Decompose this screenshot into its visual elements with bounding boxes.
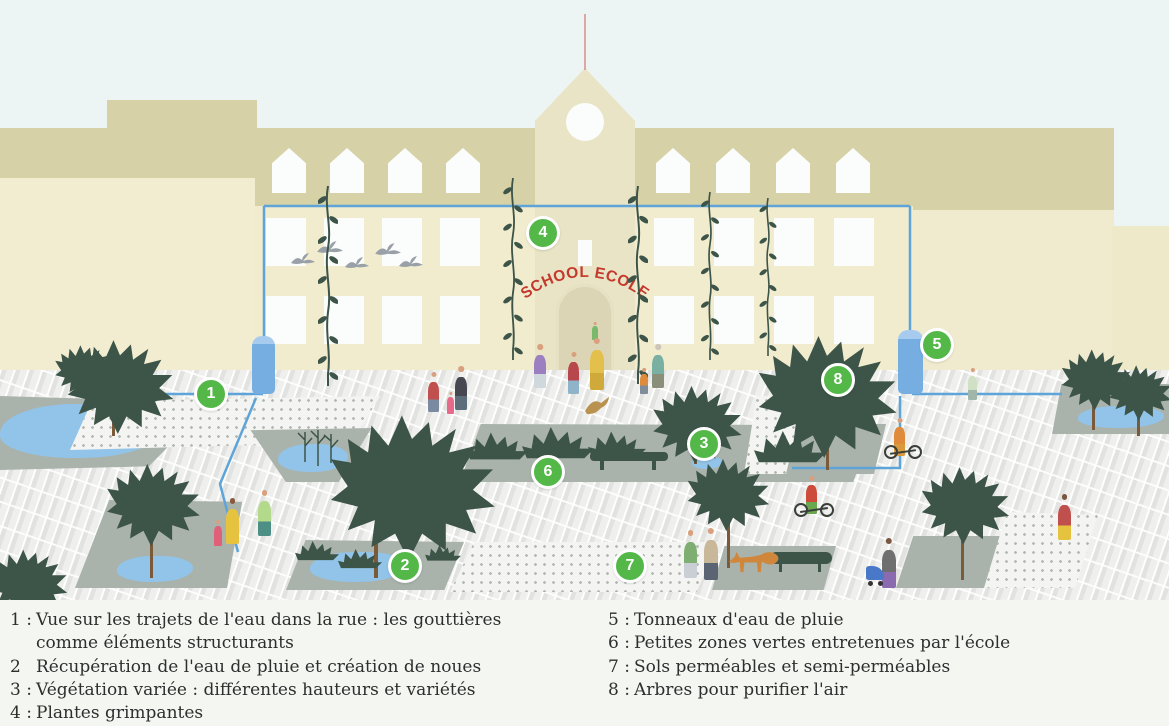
legend-text: Tonneaux d'eau de pluie xyxy=(634,609,1010,632)
marker-number: 2 xyxy=(401,557,410,574)
legend-item-3: 3 :Végétation variée : différentes haute… xyxy=(10,679,598,702)
legend-item-8: 8 :Arbres pour purifier l'air xyxy=(608,679,1010,702)
arched-window xyxy=(330,148,364,193)
tower-round-window xyxy=(566,103,604,141)
illustration-scene: SCHOOL ECOLE xyxy=(0,0,1169,600)
tree-pit-water xyxy=(117,556,193,582)
marker-8: 8 xyxy=(821,363,855,397)
legend-column-left: 1 :Vue sur les trajets de l'eau dans la … xyxy=(0,609,598,725)
marker-number: 6 xyxy=(544,463,553,480)
rain-barrel-right xyxy=(898,330,923,394)
left-building-band xyxy=(0,128,292,180)
legend-number: 6 : xyxy=(608,632,634,655)
tree8-pit xyxy=(786,424,886,474)
marker-3: 3 xyxy=(687,427,721,461)
legend-number: 2 xyxy=(10,656,36,679)
legend-text: Récupération de l'eau de pluie et créati… xyxy=(36,656,532,679)
pedestrian xyxy=(968,368,977,400)
window xyxy=(774,218,814,266)
pedestrian xyxy=(590,338,604,390)
windows-left-row1 xyxy=(266,218,480,266)
pedestrian xyxy=(568,352,579,394)
legend-item-4: 4 :Plantes grimpantes xyxy=(10,702,598,725)
marker-number: 7 xyxy=(626,557,635,574)
marker-number: 5 xyxy=(933,336,942,353)
arched-window xyxy=(272,148,306,193)
pedestrian xyxy=(704,528,718,580)
far-right-building xyxy=(1112,226,1169,372)
marker-number: 3 xyxy=(700,435,709,452)
pedestrian xyxy=(534,344,546,388)
permeable-strip-zone-7 xyxy=(450,542,718,592)
legend-text: Végétation variée : différentes hauteurs… xyxy=(36,679,532,702)
window xyxy=(324,296,364,344)
legend-item-1: 1 :Vue sur les trajets de l'eau dans la … xyxy=(10,609,598,656)
window xyxy=(382,296,422,344)
window xyxy=(714,296,754,344)
arched-window xyxy=(388,148,422,193)
window xyxy=(440,218,480,266)
legend-text: Vue sur les trajets de l'eau dans la rue… xyxy=(36,609,532,656)
legend: 1 :Vue sur les trajets de l'eau dans la … xyxy=(0,600,1169,725)
windows-right-row1 xyxy=(654,218,874,266)
window xyxy=(774,296,814,344)
windows-left-row2 xyxy=(266,296,480,344)
legend-text: Arbres pour purifier l'air xyxy=(634,679,1010,702)
window xyxy=(382,218,422,266)
windows-right-row2 xyxy=(654,296,874,344)
child xyxy=(640,368,648,394)
window xyxy=(834,296,874,344)
pedestrian xyxy=(455,366,467,410)
arched-windows-right xyxy=(656,148,870,193)
window xyxy=(834,218,874,266)
window xyxy=(266,218,306,266)
pedestrian-with-stroller xyxy=(882,538,896,588)
window xyxy=(654,218,694,266)
marker-number: 1 xyxy=(207,385,216,402)
legend-item-2: 2Récupération de l'eau de pluie et créat… xyxy=(10,656,598,679)
marker-5: 5 xyxy=(920,328,954,362)
arched-window xyxy=(656,148,690,193)
marker-2: 2 xyxy=(388,549,422,583)
window xyxy=(266,296,306,344)
marker-7: 7 xyxy=(613,549,647,583)
arched-window xyxy=(836,148,870,193)
marker-1: 1 xyxy=(194,377,228,411)
school-sign-text: SCHOOL ECOLE xyxy=(518,264,652,303)
window xyxy=(714,218,754,266)
pedestrian xyxy=(1058,494,1071,540)
bicycle xyxy=(884,444,922,459)
legend-number: 3 : xyxy=(10,679,36,702)
arched-window xyxy=(446,148,480,193)
legend-number: 5 : xyxy=(608,609,634,632)
pedestrian xyxy=(428,372,439,412)
legend-text: Petites zones vertes entretenues par l'é… xyxy=(634,632,1010,655)
child xyxy=(447,392,454,414)
school-sign: SCHOOL ECOLE xyxy=(515,252,655,304)
pedestrian xyxy=(258,490,271,536)
left-building-facade xyxy=(0,178,255,372)
child xyxy=(214,520,222,546)
marker-4: 4 xyxy=(526,216,560,250)
legend-column-right: 5 :Tonneaux d'eau de pluie 6 :Petites zo… xyxy=(598,609,1010,725)
swale-water xyxy=(278,444,348,472)
legend-text: Sols perméables et semi-perméables xyxy=(634,656,1010,679)
legend-item-5: 5 :Tonneaux d'eau de pluie xyxy=(608,609,1010,632)
infographic-school-street: SCHOOL ECOLE xyxy=(0,0,1169,726)
arched-window xyxy=(716,148,750,193)
svg-text:SCHOOL ECOLE: SCHOOL ECOLE xyxy=(518,264,652,303)
legend-item-6: 6 :Petites zones vertes entretenues par … xyxy=(608,632,1010,655)
right-building-band xyxy=(878,128,1114,212)
legend-text: Plantes grimpantes xyxy=(36,702,532,725)
legend-number: 1 : xyxy=(10,609,36,656)
marker-number: 4 xyxy=(539,224,548,241)
arched-window xyxy=(776,148,810,193)
window xyxy=(324,218,364,266)
arched-windows-left xyxy=(272,148,480,193)
pedestrian xyxy=(652,344,664,388)
legend-item-7: 7 :Sols perméables et semi-perméables xyxy=(608,656,1010,679)
rain-barrel-left xyxy=(252,336,275,394)
marker-6: 6 xyxy=(531,455,565,489)
pedestrian xyxy=(684,530,697,578)
legend-number: 4 : xyxy=(10,702,36,725)
pedestrian xyxy=(226,498,239,544)
legend-number: 7 : xyxy=(608,656,634,679)
window xyxy=(440,296,480,344)
right-garden-water xyxy=(1078,406,1164,428)
rain-garden-right xyxy=(1052,384,1169,434)
legend-number: 8 : xyxy=(608,679,634,702)
bicycle xyxy=(794,502,834,517)
hedge-strip-fox xyxy=(712,546,836,590)
window xyxy=(654,296,694,344)
swale-zone-2 xyxy=(286,540,464,590)
marker-number: 8 xyxy=(834,371,843,388)
